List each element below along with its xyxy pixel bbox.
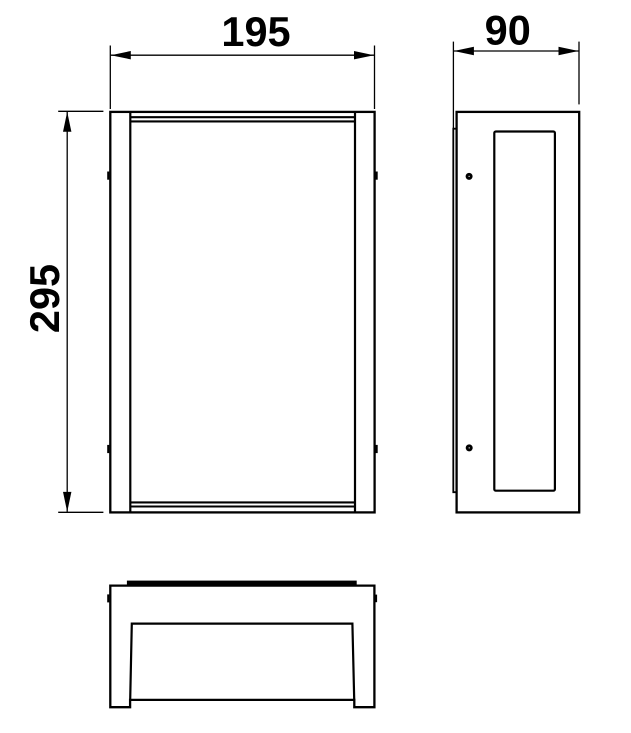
svg-text:195: 195 xyxy=(221,8,290,55)
svg-text:295: 295 xyxy=(21,264,68,333)
svg-text:90: 90 xyxy=(485,7,531,54)
